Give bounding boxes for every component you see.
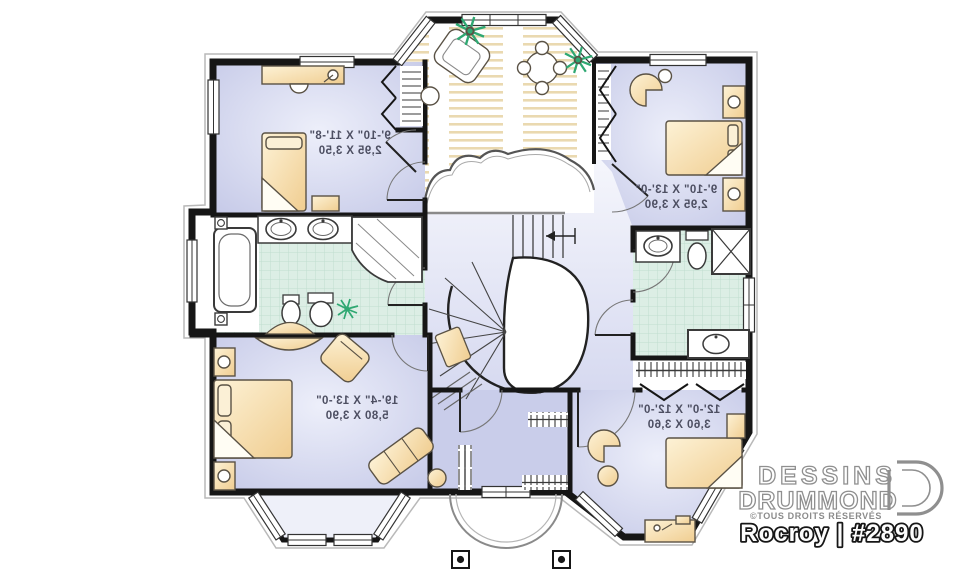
post-marker bbox=[452, 551, 469, 568]
window bbox=[650, 55, 706, 66]
post-markers bbox=[452, 551, 570, 568]
room-dim-metric: 3,60 X 3,60 bbox=[647, 419, 710, 431]
laundry-sink bbox=[688, 330, 749, 358]
nightstand bbox=[214, 462, 235, 490]
room-dim-imperial: 19'-4" X 13'-0" bbox=[316, 395, 398, 407]
sink bbox=[636, 231, 680, 262]
shower bbox=[712, 229, 750, 274]
room-dim-metric: 5,80 X 3,90 bbox=[325, 410, 388, 422]
floor-plan-canvas: 9'-10" X 11'-8" 2,95 X 3,50 9'-10" X 13'… bbox=[0, 0, 960, 569]
brand-name-line1: DESSINS bbox=[758, 462, 896, 490]
plan-title: Rocroy | #2890 bbox=[740, 520, 923, 547]
bidet bbox=[308, 293, 333, 327]
bench bbox=[312, 196, 339, 211]
bathtub bbox=[214, 217, 256, 325]
arched-window bbox=[450, 494, 562, 548]
dresser bbox=[645, 516, 695, 542]
toilet bbox=[282, 295, 300, 325]
nightstand bbox=[214, 348, 235, 376]
bed-double bbox=[666, 121, 742, 175]
window bbox=[208, 80, 219, 134]
window bbox=[288, 535, 326, 546]
room-dim-imperial: 9'-10" X 13'-0" bbox=[635, 184, 717, 196]
nightstand bbox=[723, 86, 745, 118]
desk bbox=[262, 66, 344, 84]
ottoman bbox=[428, 469, 446, 487]
toilet bbox=[686, 231, 708, 269]
window bbox=[334, 535, 372, 546]
room-dim-metric: 2,95 X 3,50 bbox=[318, 145, 381, 157]
window bbox=[462, 15, 546, 26]
bed-single bbox=[262, 133, 306, 211]
room-dim-imperial: 12'-0" X 12'-0" bbox=[638, 404, 720, 416]
bed-double bbox=[666, 438, 742, 488]
side-table bbox=[659, 70, 672, 83]
nightstand bbox=[723, 178, 745, 211]
floor-plan-page: 9'-10" X 11'-8" 2,95 X 3,50 9'-10" X 13'… bbox=[0, 0, 960, 569]
post-marker bbox=[553, 551, 570, 568]
stool bbox=[598, 466, 618, 486]
storage-box bbox=[727, 414, 745, 438]
bed-queen bbox=[214, 380, 292, 458]
room-dim-metric: 2,95 X 3,90 bbox=[644, 199, 707, 211]
window bbox=[744, 278, 755, 332]
double-sink bbox=[258, 216, 352, 243]
ottoman bbox=[421, 87, 439, 105]
room-dim-imperial: 9'-10" X 11'-8" bbox=[309, 130, 391, 142]
branding: DESSINS DRUMMOND ©TOUS DROITS RÉSERVÉS R… bbox=[738, 462, 942, 547]
window bbox=[187, 240, 197, 302]
